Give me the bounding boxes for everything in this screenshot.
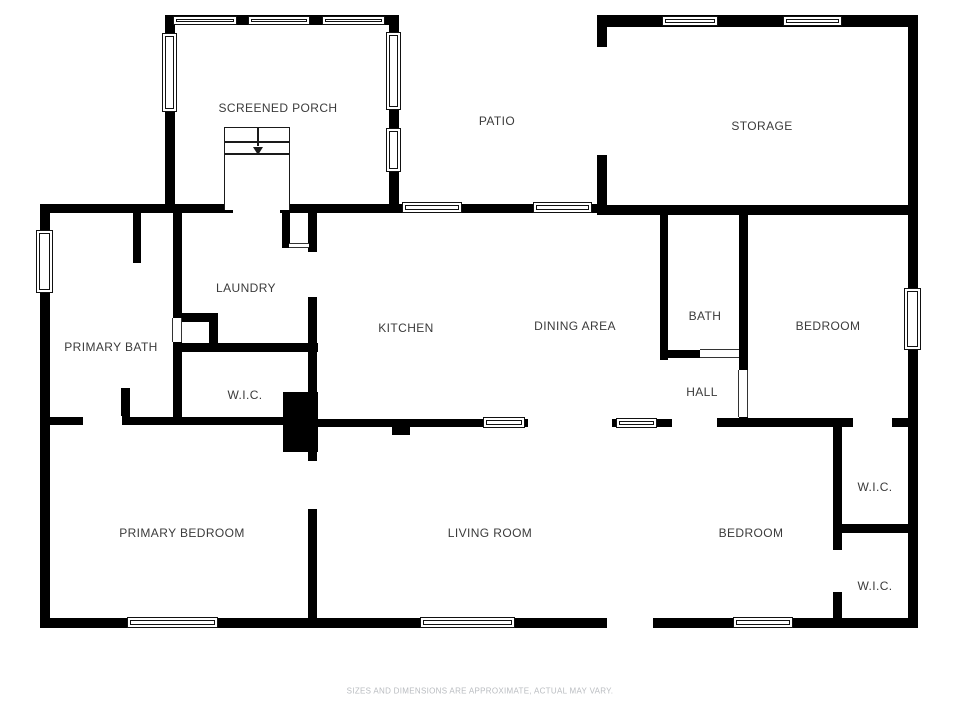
room-label-w-i-c-15: W.I.C. <box>857 579 892 593</box>
room-label-storage-2: STORAGE <box>731 119 792 133</box>
storage-top-window-1 <box>662 16 718 26</box>
window-pane <box>736 620 790 625</box>
room-label-patio-1: PATIO <box>479 114 515 128</box>
room-label-laundry-3: LAUNDRY <box>216 281 276 295</box>
wic-lower-door <box>832 550 843 592</box>
window-pane <box>786 19 839 23</box>
room-label-bath-7: BATH <box>689 309 722 323</box>
arrow-stem <box>257 128 259 146</box>
bath-bottom-wall <box>660 350 700 358</box>
primary-bath-door <box>172 318 182 342</box>
primary-bedroom-stub <box>121 388 130 425</box>
window-pane <box>325 19 382 22</box>
dining-hall-window <box>616 418 657 428</box>
room-label-living-room-12: LIVING ROOM <box>448 526 532 540</box>
hall-bath-door <box>738 370 748 417</box>
living-room-window <box>483 417 525 428</box>
storage-bottom-wall <box>597 205 918 215</box>
primary-bath-stub <box>133 212 141 263</box>
porch-top-window-2 <box>248 16 310 25</box>
entry-stairs <box>224 127 290 210</box>
storage-top-wall <box>597 15 918 27</box>
porch-right-window-1 <box>386 32 401 110</box>
room-label-primary-bath-4: PRIMARY BATH <box>64 340 158 354</box>
window-pane <box>665 19 715 23</box>
wic-divider-wall <box>840 524 910 533</box>
bath-door <box>700 349 739 358</box>
window-pane <box>165 36 174 109</box>
bedroom-top-wall-east <box>892 418 918 427</box>
room-label-kitchen-5: KITCHEN <box>378 321 433 335</box>
window-pane <box>251 19 307 22</box>
window-pane <box>619 421 654 425</box>
room-label-w-i-c-14: W.I.C. <box>857 480 892 494</box>
window-pane <box>486 420 522 425</box>
room-label-primary-bedroom-11: PRIMARY BEDROOM <box>119 526 245 540</box>
primary-bedroom-window <box>127 617 218 628</box>
window-pane <box>405 205 459 210</box>
window-pane <box>130 620 215 625</box>
room-label-bedroom-13: BEDROOM <box>719 526 784 540</box>
window-pane <box>389 35 398 107</box>
laundry-nook-wall-v <box>209 313 218 343</box>
bedroom-east-window <box>904 288 921 350</box>
room-label-bedroom-8: BEDROOM <box>796 319 861 333</box>
porch-left-window <box>162 33 177 112</box>
bedroom-top-wall-west <box>717 418 853 427</box>
top-main-wall <box>40 204 607 213</box>
vestibule-door <box>289 243 309 248</box>
window-pane <box>39 233 50 290</box>
storage-top-window-2 <box>783 16 842 26</box>
window-pane <box>536 205 589 210</box>
porch-top-window-3 <box>322 16 385 25</box>
window-pane <box>423 620 512 625</box>
bedroom-south-window <box>733 617 793 628</box>
primary-bedroom-door-2 <box>307 461 318 509</box>
room-label-w-i-c-9: W.I.C. <box>227 388 262 402</box>
disclaimer-text: SIZES AND DIMENSIONS ARE APPROXIMATE, AC… <box>347 687 614 696</box>
kitchen-left-wall-upper <box>308 213 317 252</box>
down-arrow-icon <box>253 147 263 155</box>
storage-patio-opening <box>596 47 608 155</box>
room-label-hall-10: HALL <box>686 385 718 399</box>
dining-bath-wall <box>660 212 668 360</box>
room-label-screened-porch-0: SCREENED PORCH <box>219 101 338 115</box>
floor-plan: SIZES AND DIMENSIONS ARE APPROXIMATE, AC… <box>0 0 960 720</box>
living-room-pier <box>392 427 410 435</box>
wic-top-wall <box>173 343 318 352</box>
window-pane <box>176 19 234 22</box>
porch-top-window-1 <box>173 16 237 25</box>
living-south-window <box>420 617 515 628</box>
front-door-opening <box>607 617 653 629</box>
primary-bedroom-door <box>83 416 122 426</box>
primary-bedroom-top-wall <box>40 417 310 425</box>
window-pane <box>389 131 398 169</box>
window-pane <box>907 291 918 347</box>
patio-door-window-2 <box>533 202 592 213</box>
porch-right-window-2 <box>386 128 401 172</box>
room-label-dining-area-6: DINING AREA <box>534 319 616 333</box>
patio-door-window-1 <box>402 202 462 213</box>
left-wall-window <box>36 230 53 293</box>
